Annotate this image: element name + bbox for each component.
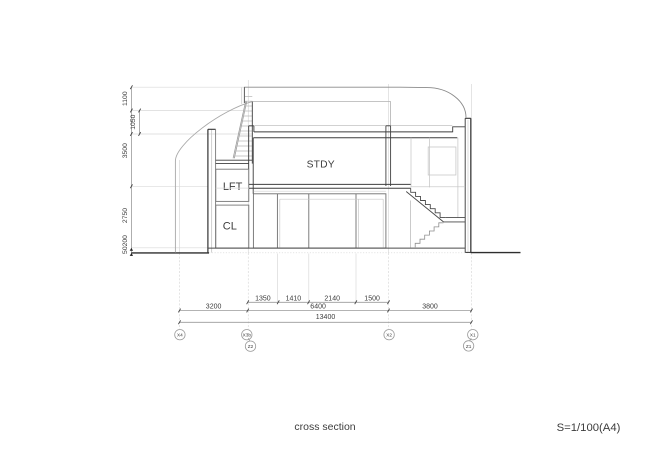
svg-text:3500: 3500	[122, 143, 129, 158]
svg-text:STDY: STDY	[307, 159, 335, 170]
svg-text:Z2: Z2	[248, 344, 254, 349]
svg-text:1050: 1050	[130, 114, 137, 129]
svg-text:CL: CL	[223, 220, 237, 232]
svg-text:6400: 6400	[310, 304, 326, 311]
svg-text:3800: 3800	[422, 304, 438, 311]
svg-text:S=1/100(A4): S=1/100(A4)	[557, 422, 621, 434]
svg-text:2750: 2750	[122, 208, 129, 223]
svg-text:cross section: cross section	[294, 421, 355, 433]
svg-text:1350: 1350	[255, 295, 271, 302]
svg-text:X2: X2	[386, 333, 392, 338]
svg-text:13400: 13400	[316, 314, 336, 321]
svg-text:LFT: LFT	[223, 181, 243, 193]
svg-text:2140: 2140	[324, 295, 340, 302]
svg-text:X4: X4	[177, 333, 183, 338]
svg-text:50200: 50200	[122, 235, 129, 254]
svg-text:Z1: Z1	[466, 344, 472, 349]
svg-text:1100: 1100	[122, 91, 129, 106]
svg-text:1500: 1500	[364, 295, 380, 302]
svg-text:X3b: X3b	[243, 333, 252, 338]
svg-text:1410: 1410	[286, 295, 302, 302]
svg-text:3200: 3200	[206, 304, 222, 311]
svg-text:X1: X1	[470, 333, 476, 338]
